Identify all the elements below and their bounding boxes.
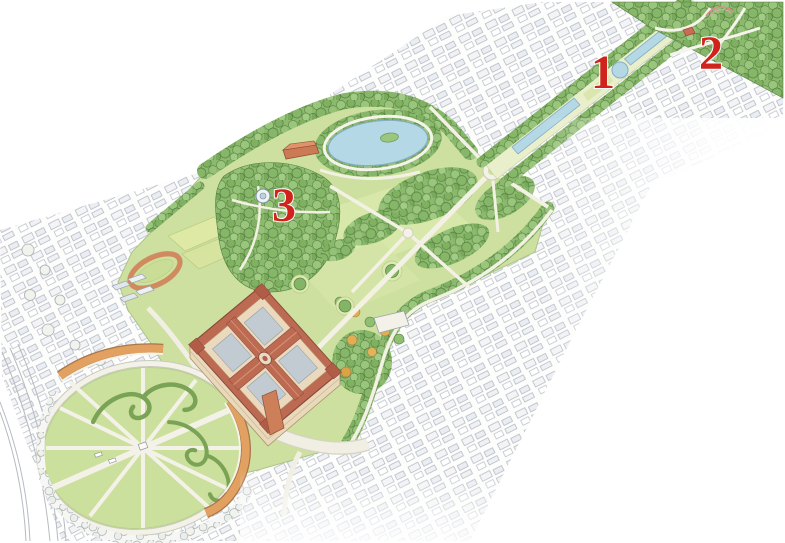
- fade-bottom: [240, 470, 560, 543]
- marker-3[interactable]: 3: [272, 179, 296, 232]
- marker-2[interactable]: 2: [699, 27, 723, 80]
- garden-pavilion: [256, 189, 270, 203]
- illustrated-map: 1 2 3: [0, 0, 785, 543]
- marker-1[interactable]: 1: [591, 46, 615, 99]
- fade-southeast: [540, 118, 785, 543]
- path-star-node: [403, 228, 413, 238]
